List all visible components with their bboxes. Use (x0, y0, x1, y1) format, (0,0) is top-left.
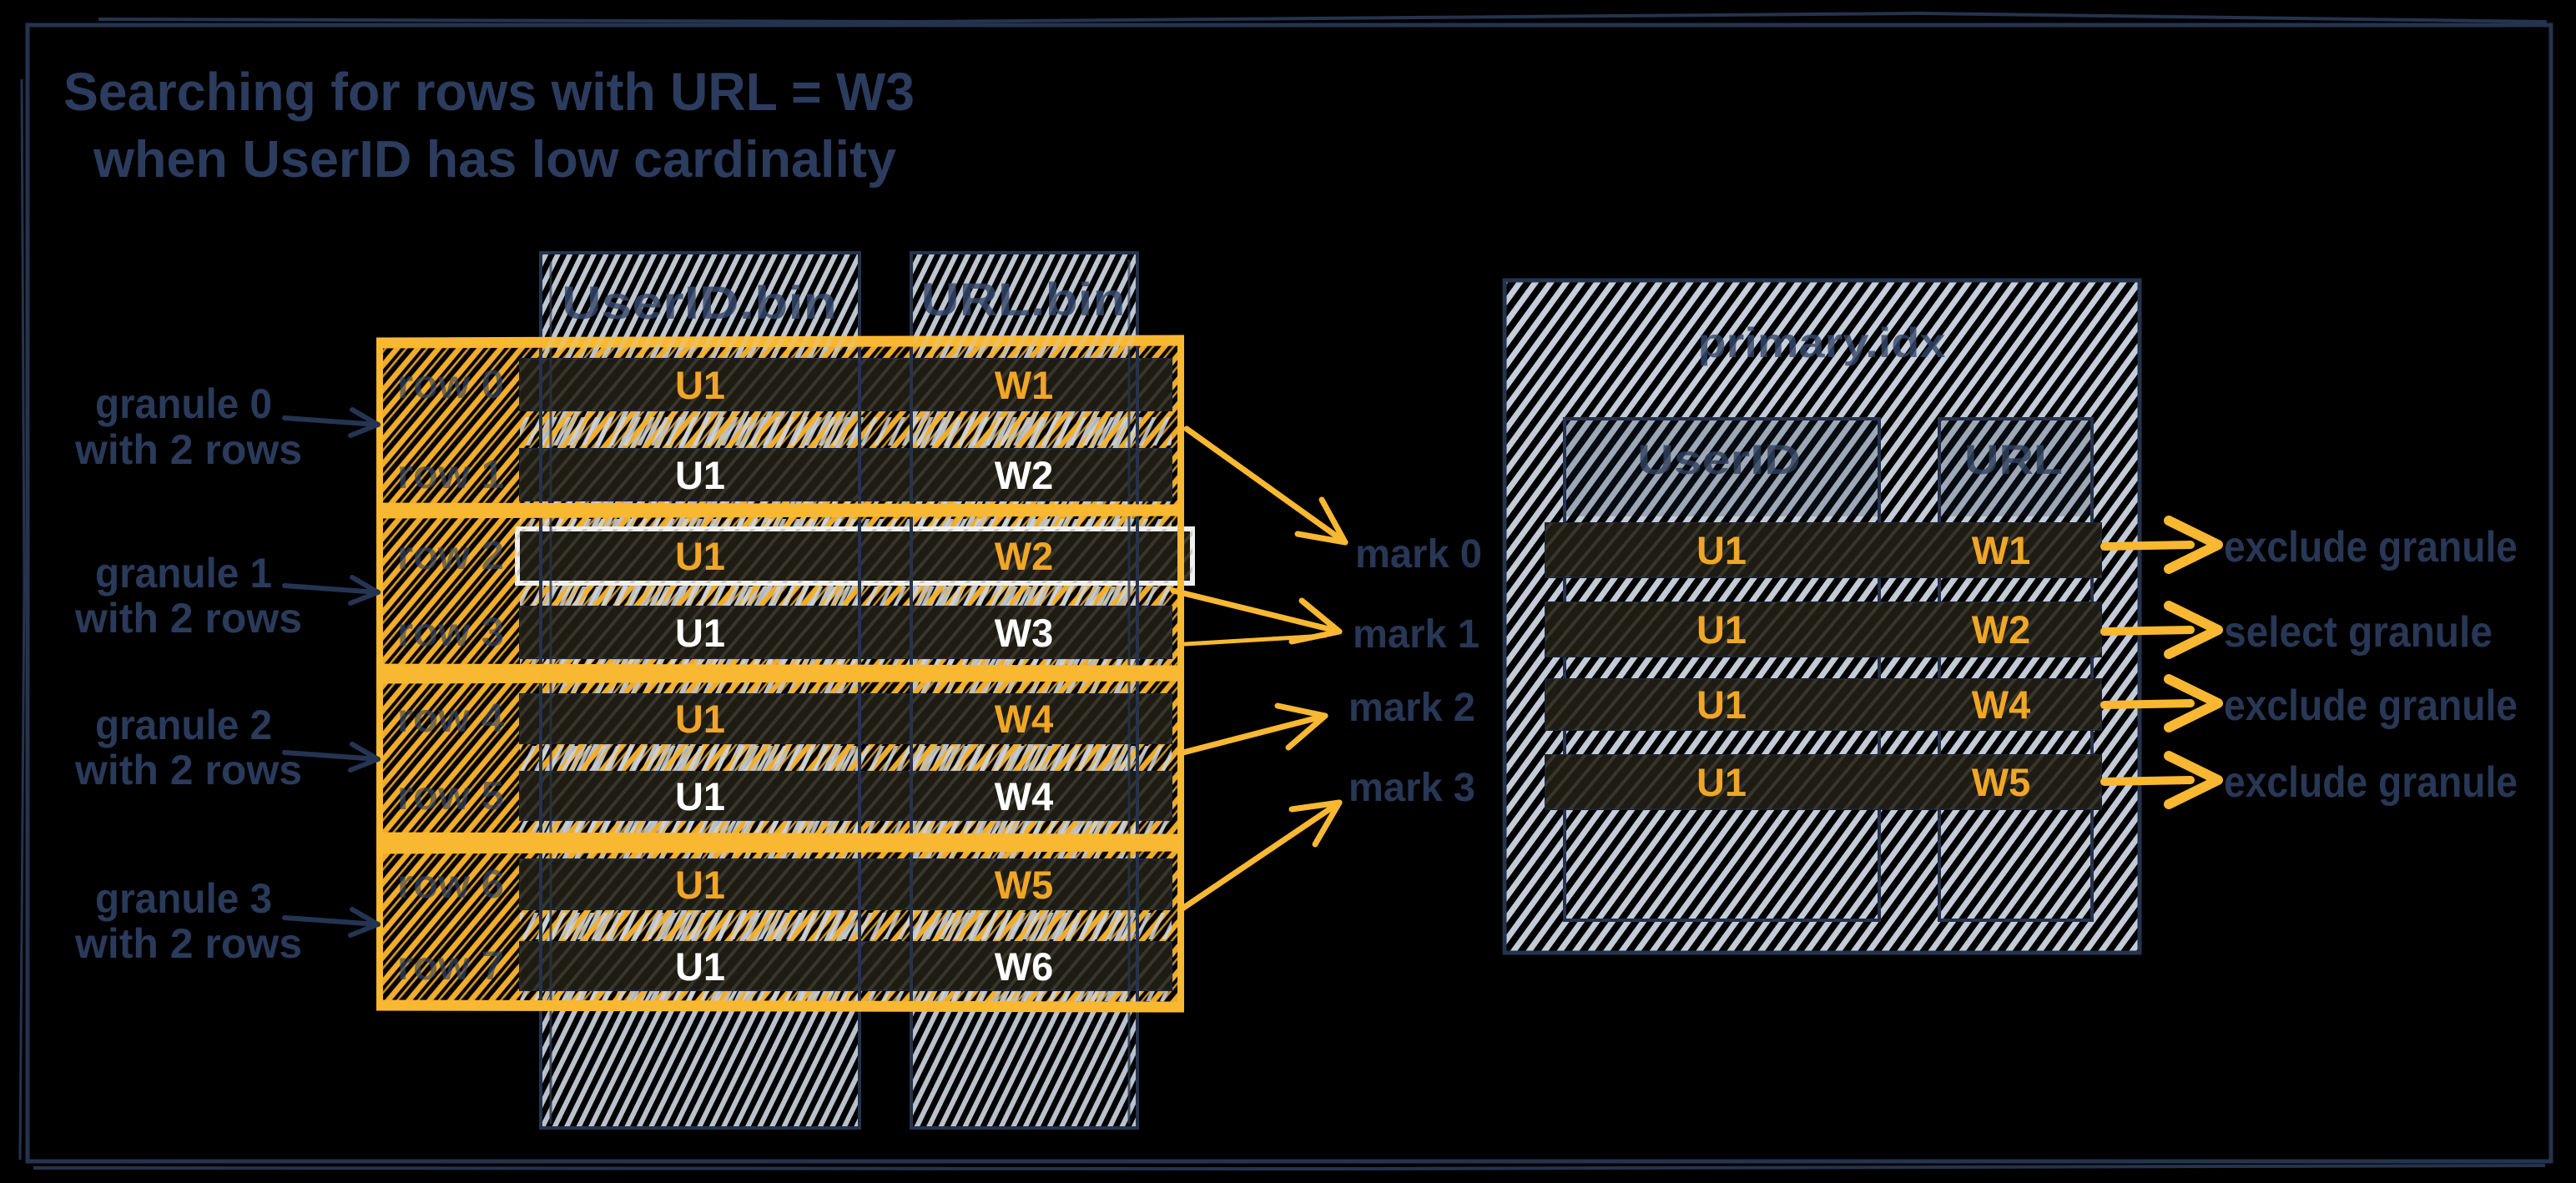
svg-text:W2: W2 (995, 453, 1054, 497)
svg-text:mark 2: mark 2 (1348, 686, 1475, 730)
svg-text:mark 3: mark 3 (1348, 766, 1475, 810)
svg-text:W1: W1 (995, 363, 1054, 407)
svg-text:exclude granule: exclude granule (2224, 523, 2518, 571)
svg-text:with 2 rows: with 2 rows (74, 747, 302, 793)
svg-text:W4: W4 (995, 774, 1054, 818)
svg-text:W5: W5 (995, 863, 1054, 907)
svg-text:U1: U1 (675, 453, 725, 497)
svg-text:with 2 rows: with 2 rows (74, 920, 302, 967)
svg-text:W4: W4 (995, 697, 1054, 741)
svg-text:U1: U1 (675, 363, 725, 407)
svg-text:W2: W2 (995, 534, 1054, 578)
svg-text:with 2 rows: with 2 rows (74, 595, 302, 642)
svg-text:U1: U1 (1696, 528, 1747, 572)
svg-text:U1: U1 (675, 534, 725, 578)
svg-text:U1: U1 (675, 774, 725, 818)
svg-text:mark 0: mark 0 (1355, 532, 1482, 576)
svg-text:U1: U1 (1696, 607, 1747, 652)
svg-text:with 2 rows: with 2 rows (74, 426, 302, 473)
svg-text:Searching for rows with URL =: Searching for rows with URL = W3 (63, 62, 915, 122)
svg-text:granule 1: granule 1 (95, 550, 272, 597)
svg-text:exclude granule: exclude granule (2224, 758, 2518, 807)
svg-text:granule 0: granule 0 (95, 380, 272, 427)
svg-text:W6: W6 (995, 944, 1054, 989)
svg-text:granule 3: granule 3 (95, 875, 272, 922)
svg-text:mark 1: mark 1 (1353, 612, 1480, 657)
svg-text:exclude granule: exclude granule (2224, 682, 2518, 730)
svg-text:W4: W4 (1972, 682, 2031, 727)
svg-text:U1: U1 (675, 944, 725, 989)
svg-text:W5: W5 (1972, 760, 2031, 804)
svg-text:when UserID has low cardinalit: when UserID has low cardinality (93, 131, 897, 189)
svg-text:U1: U1 (1696, 682, 1747, 727)
svg-text:select granule: select granule (2224, 608, 2493, 657)
svg-text:U1: U1 (675, 697, 725, 741)
svg-text:U1: U1 (675, 863, 725, 907)
svg-text:W2: W2 (1972, 607, 2031, 652)
svg-text:U1: U1 (1696, 760, 1747, 804)
svg-text:granule 2: granule 2 (95, 702, 272, 748)
svg-text:U1: U1 (675, 611, 725, 655)
svg-text:W3: W3 (995, 611, 1054, 655)
svg-text:W1: W1 (1972, 528, 2031, 572)
